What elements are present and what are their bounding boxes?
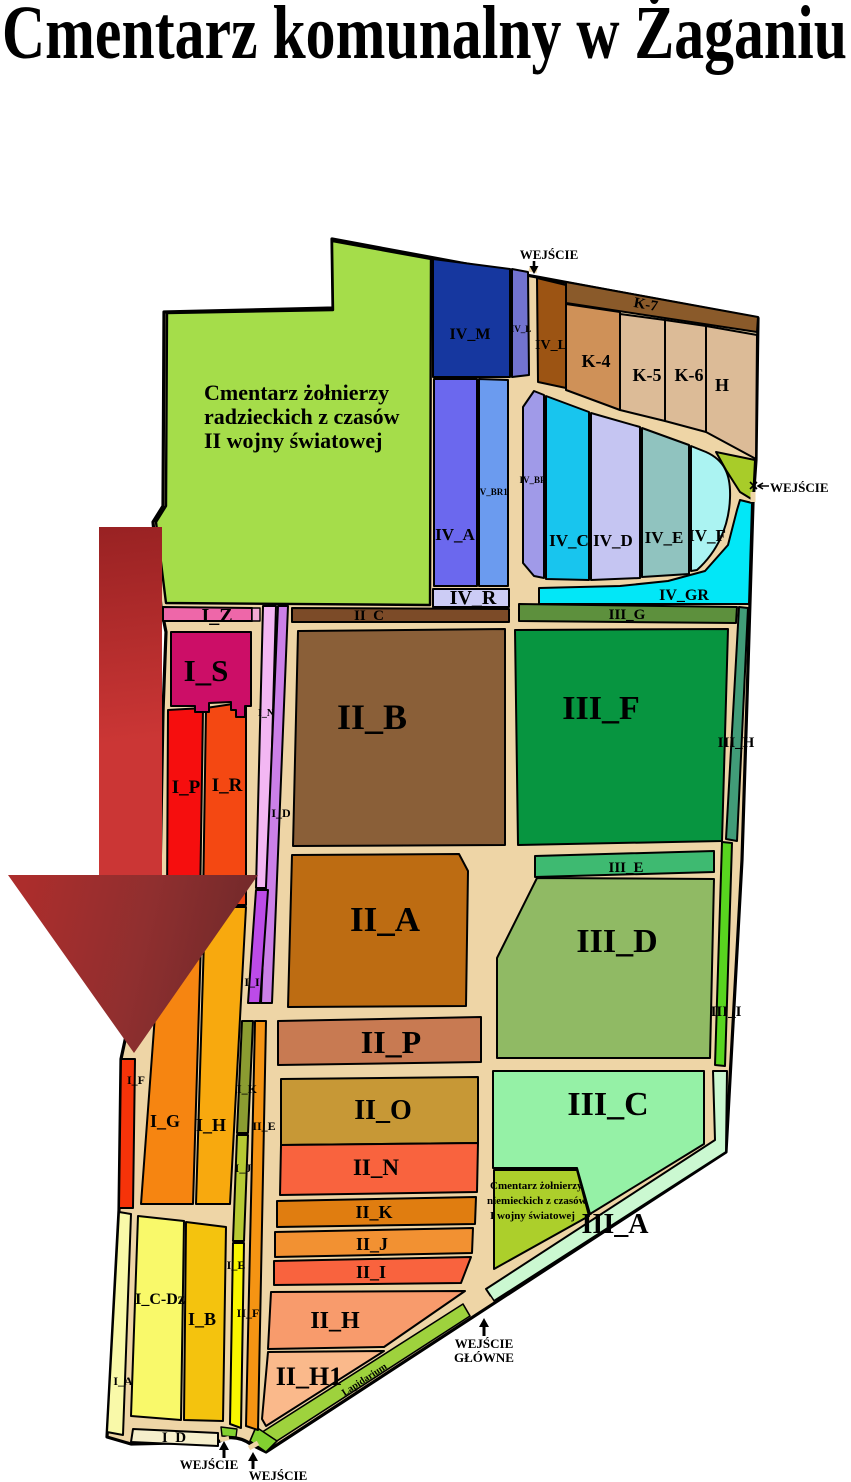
svg-text:IV_D: IV_D (593, 531, 633, 550)
svg-text:I_B: I_B (188, 1309, 216, 1329)
svg-text:I_S: I_S (184, 653, 229, 688)
svg-text:radzieckich z czasów: radzieckich z czasów (204, 404, 400, 429)
svg-text:III_A: III_A (582, 1209, 650, 1240)
svg-text:IV_BR1: IV_BR1 (476, 487, 508, 497)
svg-text:III_C: III_C (567, 1086, 648, 1123)
svg-text:II_N: II_N (353, 1155, 399, 1180)
svg-text:I_D: I_D (162, 1430, 186, 1446)
svg-text:WEJŚCIE: WEJŚCIE (455, 1336, 514, 1351)
svg-text:IV_BR: IV_BR (519, 475, 547, 485)
svg-text:I_I: I_I (244, 975, 260, 989)
svg-text:II_E: II_E (252, 1119, 275, 1133)
svg-text:III_I: III_I (711, 1004, 742, 1020)
svg-text:IV_M: IV_M (450, 326, 491, 343)
svg-text:II_I: II_I (356, 1262, 386, 1282)
svg-text:I_F: I_F (127, 1073, 145, 1087)
svg-text:Cmentarz żołnierzy: Cmentarz żołnierzy (490, 1180, 583, 1192)
svg-text:III_F: III_F (562, 690, 639, 727)
svg-text:II_P: II_P (361, 1024, 421, 1060)
svg-text:III_G: III_G (609, 607, 646, 623)
svg-text:IV_GR: IV_GR (659, 587, 709, 604)
svg-text:WEJŚCIE: WEJŚCIE (770, 480, 829, 495)
svg-text:Cmentarz komunalny w Żaganiu: Cmentarz komunalny w Żaganiu (2, 0, 847, 75)
svg-text:III_D: III_D (576, 923, 657, 960)
svg-text:II_H1: II_H1 (276, 1362, 342, 1391)
svg-text:IV_A: IV_A (435, 525, 475, 544)
svg-text:III_H: III_H (718, 735, 755, 751)
svg-text:IV_R: IV_R (450, 587, 497, 609)
svg-text:II_F: II_F (237, 1306, 260, 1320)
svg-text:II_A: II_A (350, 900, 421, 939)
svg-text:IV_L: IV_L (511, 324, 532, 334)
svg-text:K-5: K-5 (633, 365, 662, 385)
svg-text:I_D: I_D (271, 806, 291, 820)
svg-text:I_G: I_G (150, 1111, 180, 1131)
svg-text:WEJŚCIE: WEJŚCIE (180, 1457, 239, 1472)
svg-text:IV_L: IV_L (535, 338, 567, 353)
svg-text:niemieckich z czasów: niemieckich z czasów (487, 1195, 587, 1207)
svg-text:Cmentarz żołnierzy: Cmentarz żołnierzy (204, 380, 389, 405)
svg-text:II_B: II_B (337, 697, 407, 737)
svg-text:H: H (715, 375, 729, 395)
svg-text:II_K: II_K (355, 1202, 392, 1222)
svg-text:I_P: I_P (172, 777, 201, 798)
svg-text:IV_F: IV_F (688, 526, 726, 545)
svg-text:WEJŚCIE: WEJŚCIE (249, 1468, 308, 1482)
svg-text:I_R: I_R (212, 775, 243, 796)
svg-text:II wojny światowej: II wojny światowej (204, 428, 382, 453)
svg-text:I_A: I_A (113, 1374, 133, 1388)
svg-text:IV_C: IV_C (549, 531, 589, 550)
svg-text:K-6: K-6 (675, 365, 704, 385)
svg-text:II_O: II_O (354, 1095, 412, 1126)
svg-text:I_H: I_H (196, 1115, 226, 1135)
svg-text:IV_E: IV_E (645, 528, 684, 547)
svg-text:II_C: II_C (354, 608, 384, 624)
svg-text:I_E: I_E (227, 1258, 246, 1272)
svg-text:GŁÓWNE: GŁÓWNE (454, 1350, 514, 1365)
svg-text:I_Z: I_Z (201, 605, 232, 627)
svg-text:I_C-Dz: I_C-Dz (135, 1291, 185, 1308)
svg-text:I_J: I_J (235, 1161, 252, 1175)
svg-text:I_K: I_K (237, 1082, 258, 1096)
svg-text:WEJŚCIE: WEJŚCIE (520, 247, 579, 262)
svg-text:I_N: I_N (258, 708, 275, 719)
svg-text:I wojny światowej: I wojny światowej (490, 1210, 575, 1222)
svg-text:K-4: K-4 (582, 351, 611, 371)
svg-text:II_H: II_H (310, 1308, 360, 1334)
svg-text:II_J: II_J (356, 1234, 388, 1254)
svg-text:III_E: III_E (608, 860, 643, 876)
